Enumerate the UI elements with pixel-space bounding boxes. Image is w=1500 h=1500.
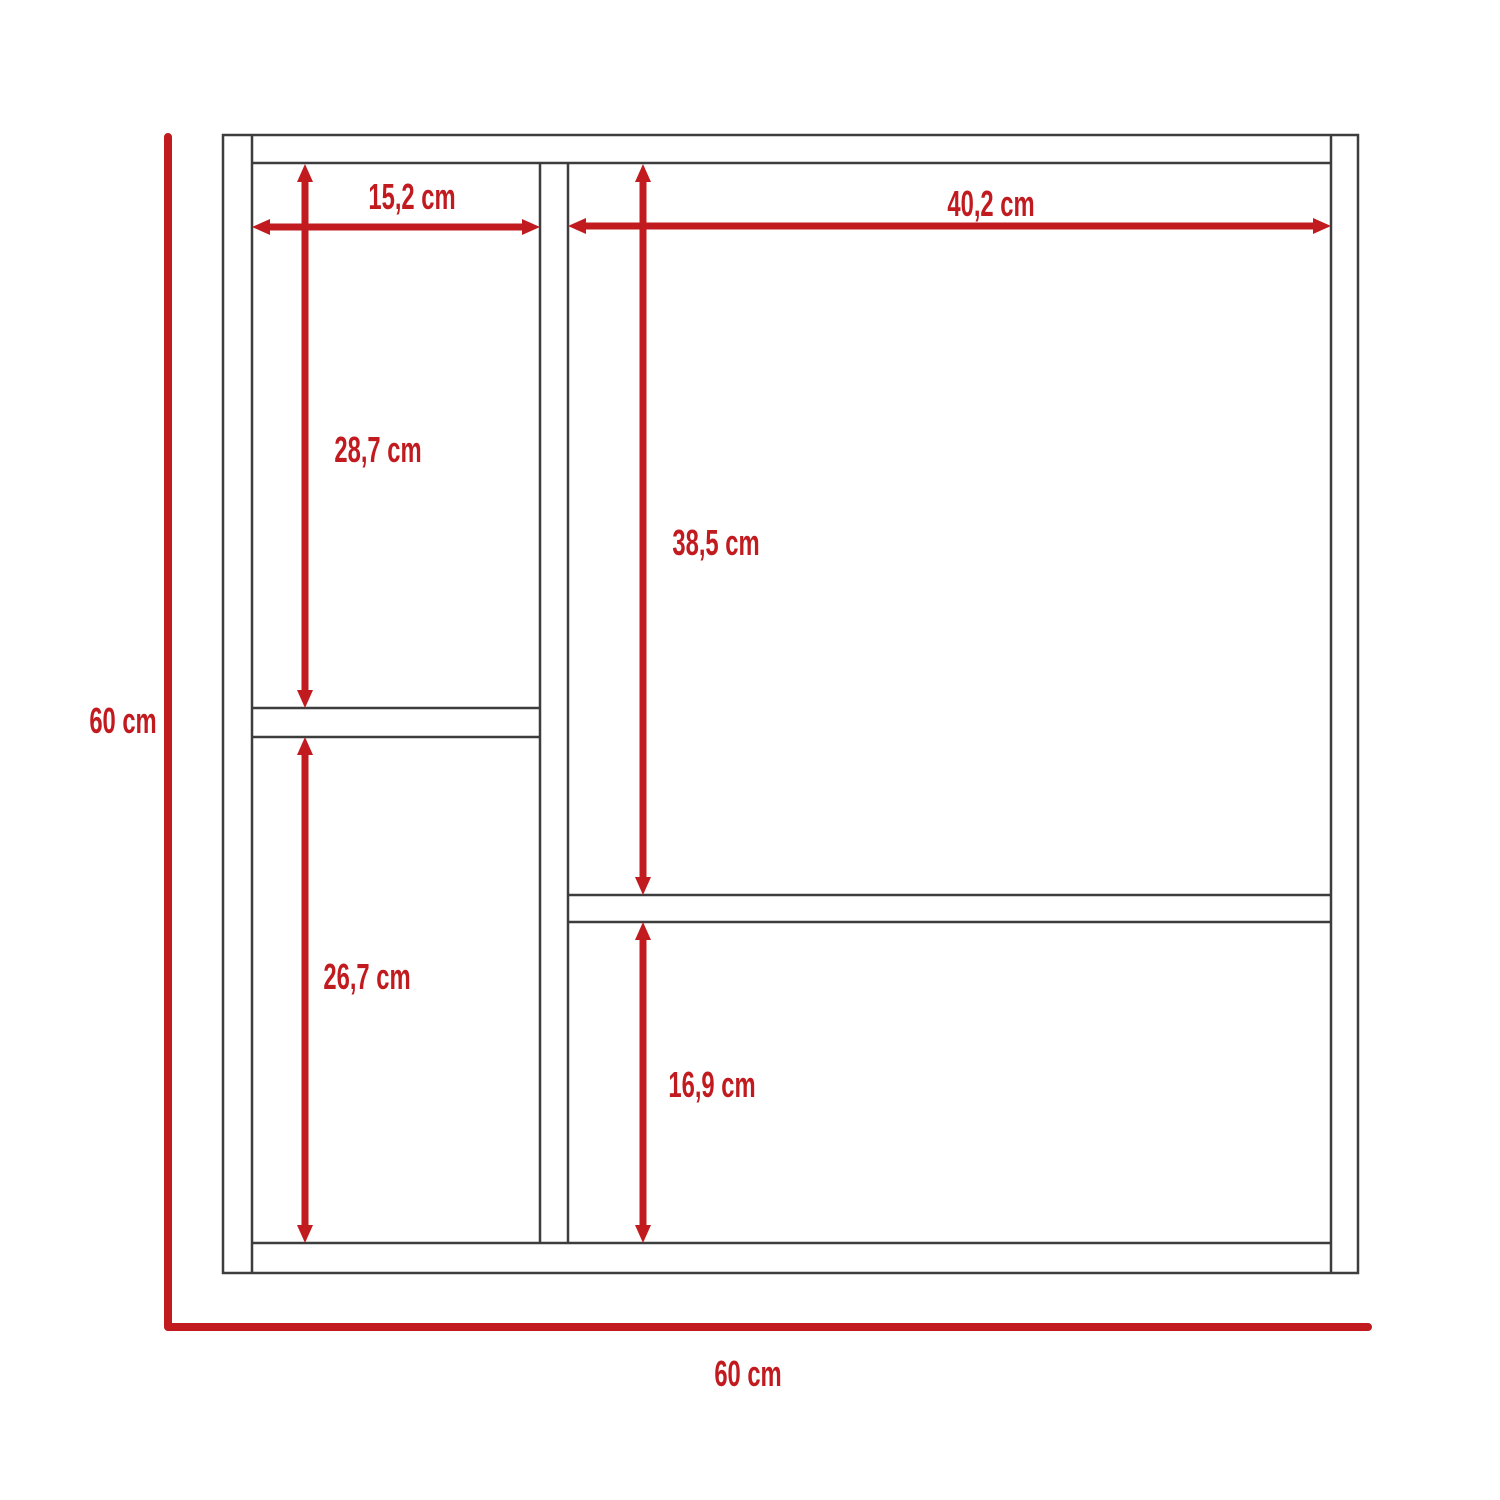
- label-left-upper-height: 28,7 cm: [334, 432, 421, 468]
- arrowhead-right: [522, 219, 540, 235]
- label-top-right-width: 40,2 cm: [947, 186, 1034, 222]
- arrowhead-left: [568, 218, 586, 234]
- label-overall-width: 60 cm: [714, 1356, 781, 1392]
- dimension-arrows: [252, 164, 1331, 1243]
- cabinet-outer-frame: [223, 135, 1358, 1273]
- dim-arrow-left-lower-height: [297, 737, 313, 1243]
- arrowhead-up: [635, 922, 651, 940]
- arrowhead-down: [297, 690, 313, 708]
- arrowhead-down: [635, 1225, 651, 1243]
- arrowhead-down: [297, 1225, 313, 1243]
- overall-axis-line: [168, 137, 1368, 1327]
- label-top-left-width: 15,2 cm: [368, 179, 455, 215]
- overall-axis: [168, 137, 1368, 1327]
- label-overall-height: 60 cm: [89, 703, 156, 739]
- dim-arrow-right-upper-height: [635, 164, 651, 895]
- cabinet-outline: [223, 135, 1358, 1273]
- dim-arrow-left-upper-height: [297, 164, 313, 708]
- dimension-diagram: 15,2 cm 40,2 cm 28,7 cm 38,5 cm 26,7 cm …: [0, 0, 1500, 1500]
- arrowhead-up: [635, 164, 651, 182]
- diagram-drawing: [0, 0, 1500, 1500]
- label-right-upper-height: 38,5 cm: [672, 525, 759, 561]
- label-right-lower-height: 16,9 cm: [668, 1067, 755, 1103]
- dim-arrow-right-lower-height: [635, 922, 651, 1243]
- dim-arrow-top-left-width: [252, 219, 540, 235]
- arrowhead-up: [297, 164, 313, 182]
- arrowhead-left: [252, 219, 270, 235]
- arrowhead-up: [297, 737, 313, 755]
- label-left-lower-height: 26,7 cm: [323, 959, 410, 995]
- arrowhead-right: [1313, 218, 1331, 234]
- arrowhead-down: [635, 877, 651, 895]
